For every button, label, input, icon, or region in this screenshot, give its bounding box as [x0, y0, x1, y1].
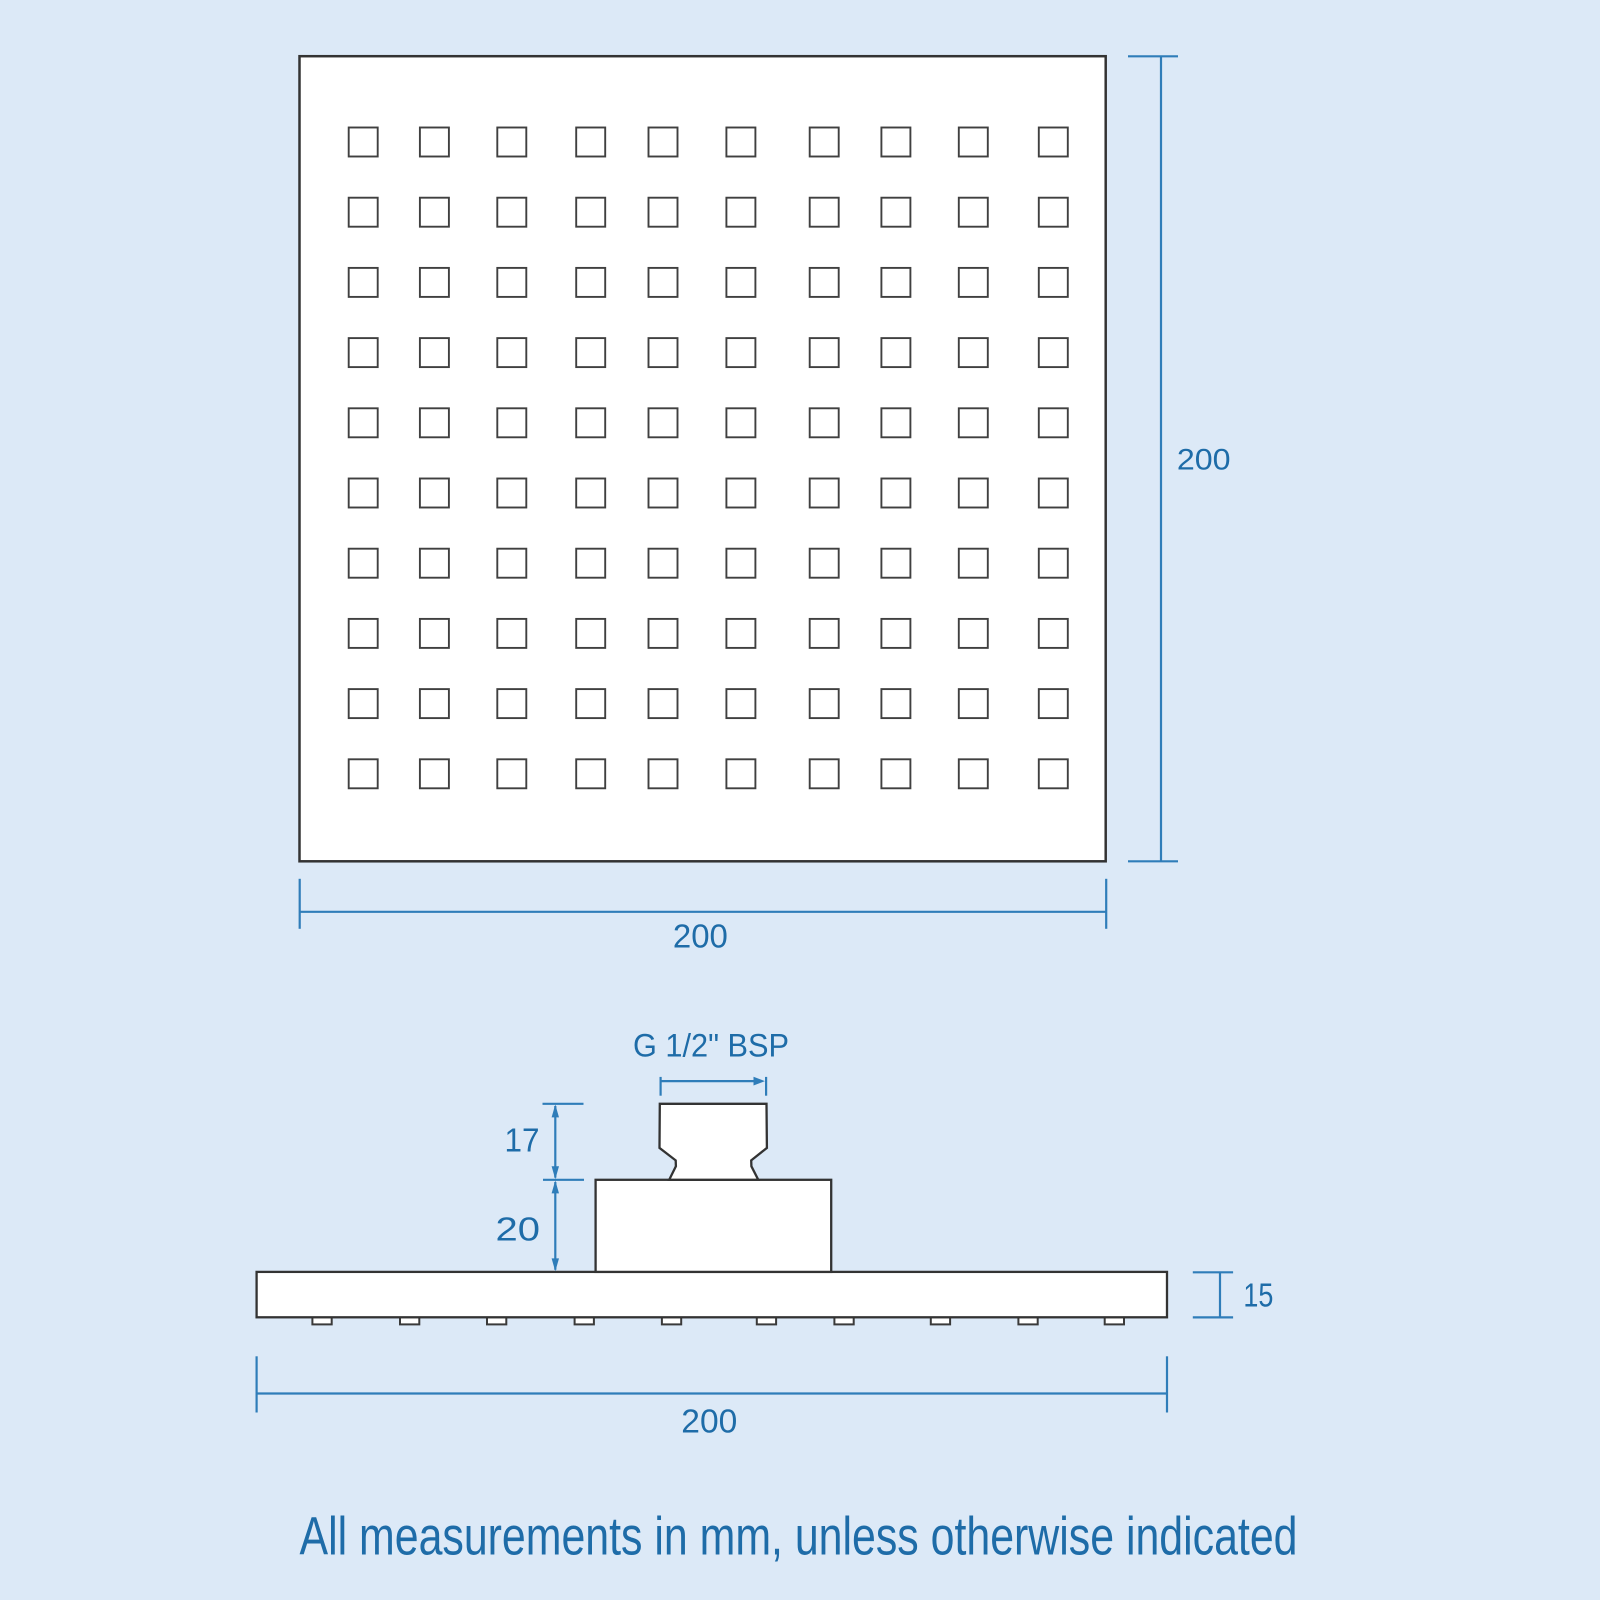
svg-text:17: 17: [505, 1122, 540, 1159]
svg-text:All measurements in mm, unless: All measurements in mm, unless otherwise…: [300, 1508, 1298, 1567]
svg-text:15: 15: [1243, 1277, 1273, 1314]
svg-text:200: 200: [673, 917, 728, 954]
svg-text:200: 200: [681, 1403, 737, 1440]
svg-text:200: 200: [1177, 443, 1231, 476]
svg-text:20: 20: [496, 1211, 541, 1248]
svg-text:G 1/2" BSP: G 1/2" BSP: [633, 1027, 789, 1063]
